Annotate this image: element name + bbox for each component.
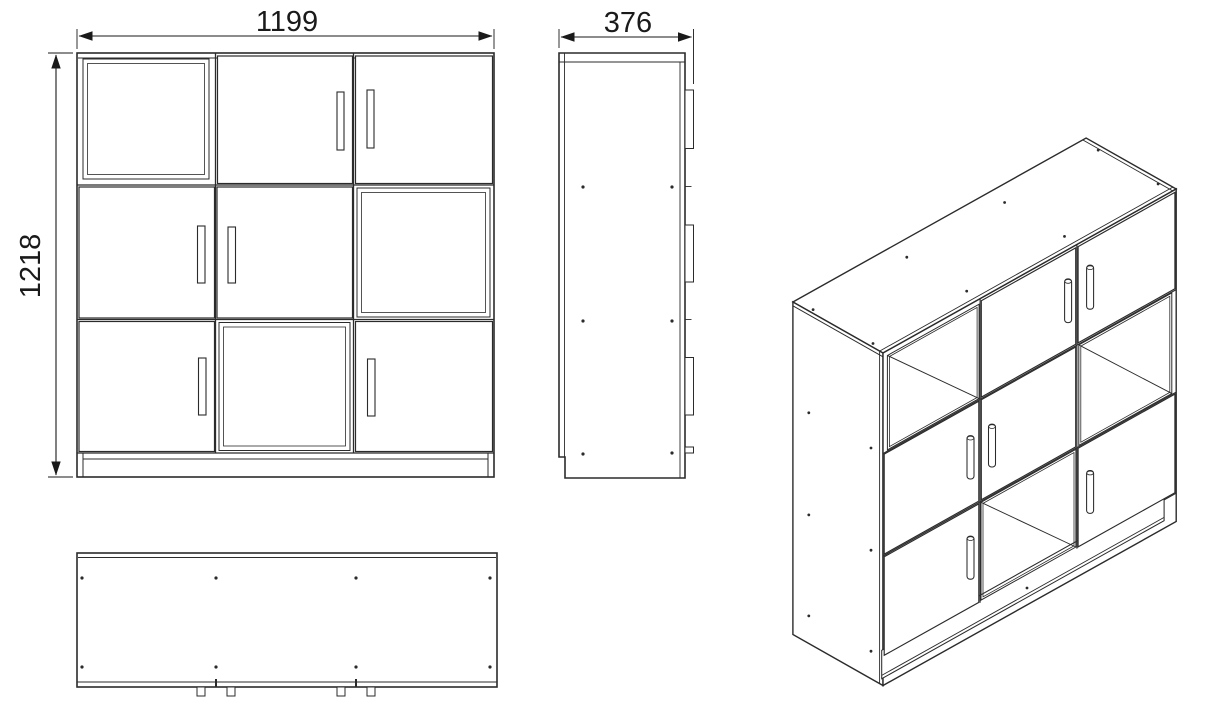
dowel-dot xyxy=(812,308,815,311)
isometric-view xyxy=(793,138,1176,686)
iso-door-handle xyxy=(967,536,974,579)
iso-door-handle xyxy=(967,436,974,479)
side-door-edge xyxy=(685,90,694,149)
height-dimension-label: 1218 xyxy=(15,234,47,299)
door-handle xyxy=(199,358,207,415)
dowel-dot xyxy=(670,185,673,188)
dowel-dot xyxy=(581,452,584,455)
front-door-r3c1 xyxy=(79,322,215,452)
dowel-dot xyxy=(870,549,873,552)
side-door-edge xyxy=(685,225,694,282)
dowel-dot xyxy=(488,665,491,668)
handle-tab xyxy=(367,687,375,696)
door-handle xyxy=(337,92,344,150)
dowel-dot xyxy=(488,576,491,579)
dowel-dot xyxy=(1003,201,1006,204)
front-door-r2c2 xyxy=(217,187,353,318)
dowel-dot xyxy=(581,185,584,188)
dowel-dot xyxy=(965,290,968,293)
dowel-dot xyxy=(1157,183,1160,186)
dowel-dot xyxy=(807,615,810,618)
dowel-dot xyxy=(214,665,217,668)
dowel-dot xyxy=(870,650,873,653)
dowel-dot xyxy=(354,665,357,668)
front-door-r1c2 xyxy=(218,56,353,184)
technical-drawing-page: 1199 1218 xyxy=(0,0,1220,717)
dowel-dot xyxy=(870,447,873,450)
iso-door-handle-cap xyxy=(1087,471,1094,475)
iso-door-handle-cap xyxy=(967,436,974,440)
dowel-dot xyxy=(872,342,875,345)
dowel-dot xyxy=(214,576,217,579)
iso-door-handle xyxy=(989,424,996,467)
technical-drawing-canvas: 1199 1218 xyxy=(0,0,1220,717)
iso-door-handle-cap xyxy=(1087,266,1094,270)
dowel-dot xyxy=(905,256,908,259)
dowel-dot xyxy=(80,665,83,668)
side-door-edge xyxy=(685,358,694,416)
door-handle xyxy=(368,359,376,416)
dowel-dot xyxy=(1026,587,1029,590)
side-plinth-edge xyxy=(685,447,694,453)
iso-door-handle-cap xyxy=(967,537,974,541)
top-handle-tabs xyxy=(197,687,375,696)
height-dimension xyxy=(48,53,73,477)
top-carcass-outline xyxy=(77,553,497,687)
dowel-dot xyxy=(807,514,810,517)
front-view: 1199 1218 xyxy=(15,6,494,477)
iso-door-handle-cap xyxy=(989,425,996,429)
side-carcass-outline xyxy=(559,53,685,478)
dowel-dot xyxy=(1097,149,1100,152)
dowel-dot xyxy=(354,576,357,579)
width-dimension-label: 1199 xyxy=(256,6,318,38)
front-door-r3c3 xyxy=(356,322,493,452)
door-handle xyxy=(198,226,206,283)
dowel-dot xyxy=(807,411,810,414)
dowel-dot xyxy=(670,451,673,454)
iso-door-handle xyxy=(1087,471,1094,514)
iso-door-handle xyxy=(1065,279,1072,323)
depth-dimension-label: 376 xyxy=(604,7,652,39)
door-handle xyxy=(367,90,374,148)
dowel-dot xyxy=(670,319,673,322)
side-door-edges xyxy=(685,90,694,453)
dowel-dot xyxy=(80,576,83,579)
front-door-r1c3 xyxy=(356,56,493,184)
handle-tab xyxy=(337,687,345,696)
dowel-dot xyxy=(581,319,584,322)
dowel-dot xyxy=(1063,235,1066,238)
iso-door-handle xyxy=(1087,265,1094,309)
iso-left-face xyxy=(793,302,883,686)
iso-door-handle-cap xyxy=(1065,280,1072,284)
door-handle xyxy=(228,227,236,283)
handle-tab xyxy=(197,687,205,696)
top-view xyxy=(77,553,497,696)
front-door-r2c1 xyxy=(79,187,215,318)
handle-tab xyxy=(227,687,235,696)
side-view: 376 xyxy=(559,7,694,478)
